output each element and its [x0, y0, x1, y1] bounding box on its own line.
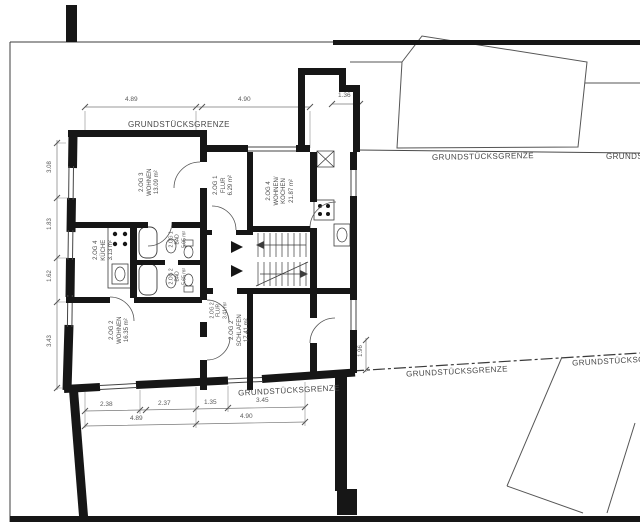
sheet-border-lines: [10, 42, 640, 522]
room-area: 6.29 m²: [228, 159, 236, 211]
room-label-wohnen-2: 2.OG 2 WOHNEN 16.35 m²: [109, 304, 132, 356]
wall: [207, 145, 248, 152]
neighbor-building-top: [397, 36, 587, 148]
window-north-glazing: [248, 147, 296, 151]
wall-interior: [310, 228, 317, 318]
dim-bottom-1: 2.38: [100, 401, 113, 408]
room-name: WOHNEN/: [274, 165, 282, 217]
room-area: 13.09 m²: [154, 156, 162, 208]
dim-bottom-4: 3.45: [256, 397, 269, 404]
room-name: KÜCHE: [100, 224, 108, 276]
dim-bottom-total-1: 4.89: [130, 415, 143, 422]
wall-interior: [236, 230, 247, 235]
room-area: 16.35 m²: [124, 304, 132, 356]
room-name2: KOCHEN: [281, 165, 289, 217]
room-name: FLUR: [220, 159, 228, 211]
sink2-basin: [337, 228, 347, 242]
neighbor-building-bottom: [507, 357, 635, 513]
wall-interior: [317, 288, 350, 294]
wall: [200, 188, 207, 300]
room-label-wohnen-kochen-4: 2.OG 4 WOHNEN/ KOCHEN 21.87 m²: [266, 165, 296, 217]
room-label-bad-2: 2.OG 2 BAD 5.65 m²: [169, 254, 188, 298]
dim-bottom-2: 2.37: [158, 400, 171, 407]
room-name: WOHNEN: [146, 156, 154, 208]
room-name: WOHNEN: [116, 304, 124, 356]
room-label-flur-2: 2.OG 2 FLUR 3.41 m²: [210, 288, 229, 332]
stove2-icon: [318, 204, 330, 216]
room-area: 3.13 m²: [108, 224, 116, 276]
dim-left-3: 1.62: [47, 264, 53, 288]
door-marker-triangle: [231, 241, 243, 253]
bathtub-icon: [139, 227, 157, 258]
room-label-flur-1: 2.OG 1 FLUR 6.29 m²: [213, 159, 236, 211]
wall-interior: [237, 288, 310, 294]
room-name: SCHLAFEN: [236, 304, 244, 356]
shaft-icon: [317, 151, 334, 167]
room-id: 2.OG 2: [109, 304, 117, 356]
wall-wing: [353, 85, 360, 152]
room-id: 2.OG 4: [93, 224, 101, 276]
wall: [200, 130, 207, 162]
dim-bottom-total-2: 4.90: [240, 413, 253, 420]
border-thick-top-right: [333, 40, 640, 45]
wall-north: [68, 130, 207, 137]
room-label-schlafen-2: 2.OG 2 SCHLAFEN 17.41 m²: [229, 304, 252, 356]
room-area: 17.41 m²: [244, 304, 252, 356]
dim-top-2: 4.90: [238, 96, 251, 103]
wall-interior: [137, 260, 165, 265]
wall-east: [350, 330, 357, 373]
wall-east: [350, 152, 357, 170]
room-id: 2.OG 4: [266, 165, 274, 217]
dim-left-4: 3.43: [47, 329, 53, 353]
wall-corridor: [247, 152, 253, 235]
door-marker-triangle: [231, 265, 243, 277]
neighbor-connector-lines: [350, 62, 640, 83]
room-label-wohnen-3: 2.OG 3 WOHNEN 13.09 m²: [139, 156, 162, 208]
wall: [200, 322, 207, 337]
wall-remnant-foot: [337, 489, 357, 515]
wall-wing: [298, 68, 305, 152]
dim-right-1: 1.96: [358, 339, 364, 363]
wall-interior: [310, 152, 317, 202]
wall-west: [67, 135, 73, 390]
stair-arrow-down: [300, 270, 308, 278]
wall-east: [350, 196, 357, 300]
room-area: 5.65 m²: [181, 254, 187, 298]
wall-interior: [66, 297, 110, 303]
dim-top-1: 4.89: [125, 96, 138, 103]
wall-interior: [310, 343, 317, 373]
sink-basin: [115, 267, 125, 281]
bathtub-icon: [139, 264, 157, 295]
border-thick-bottom: [10, 516, 640, 522]
room-id: 2.OG 1: [213, 159, 221, 211]
stair-arrow-up: [256, 241, 264, 249]
sink2-icon: [334, 224, 350, 246]
room-id: 2.OG 2: [229, 304, 237, 356]
wall-stub-top: [66, 5, 77, 42]
boundary-label-top: GRUNDSTÜCKSGRENZE: [128, 120, 230, 129]
dim-left-2: 1.83: [47, 212, 53, 236]
boundary-label-right-upper: GRUNDSTÜCKSGRENZE: [432, 151, 534, 162]
boundary-label-right-upper-clipped: GRUNDSTÜCKSGRENZE: [606, 152, 640, 161]
dim-bottom-3: 1.35: [204, 399, 217, 406]
dim-left-1: 3.08: [47, 155, 53, 179]
room-area: 21.87 m²: [289, 165, 297, 217]
room-label-kueche-4: 2.OG 4 KÜCHE 3.13 m²: [93, 224, 116, 276]
wall: [200, 360, 207, 390]
wall-interior: [130, 228, 137, 298]
wall-interior: [207, 230, 212, 235]
dim-top-3: 1.36: [338, 92, 351, 99]
room-area: 3.41 m²: [222, 288, 228, 332]
wall-stair: [253, 226, 310, 232]
room-id: 2.OG 3: [139, 156, 147, 208]
floor-plan-sheet: GRUNDSTÜCKSGRENZE GRUNDSTÜCKSGRENZE GRUN…: [0, 0, 640, 523]
